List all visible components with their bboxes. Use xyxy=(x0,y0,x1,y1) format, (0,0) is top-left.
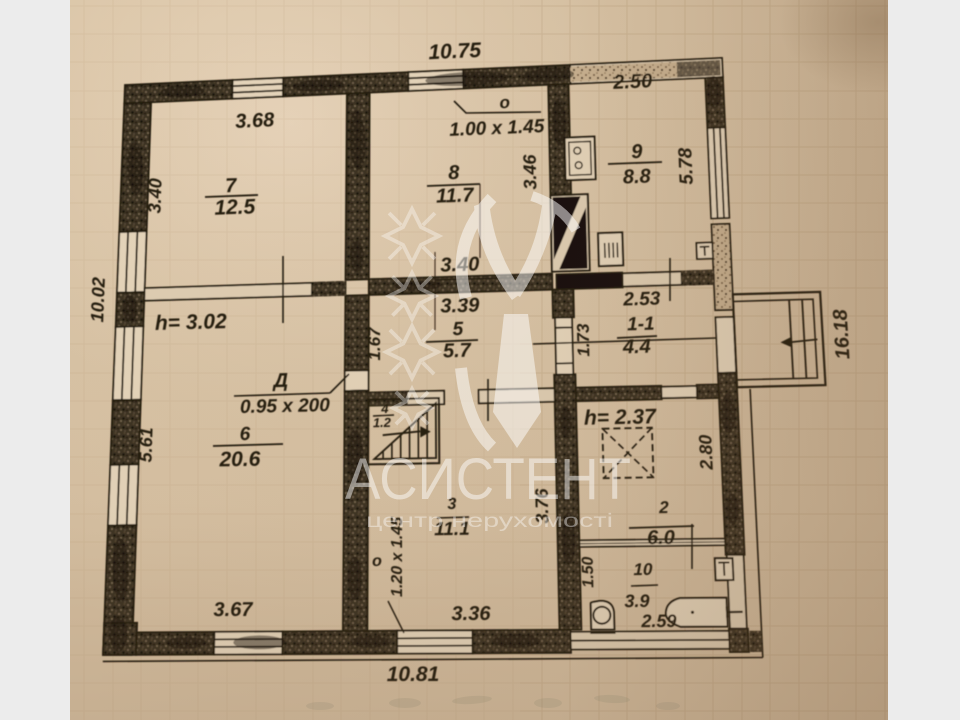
svg-text:центр нерухомості: центр нерухомості xyxy=(366,511,613,532)
svg-text:АСИСТЕНТ: АСИСТЕНТ xyxy=(345,447,631,512)
